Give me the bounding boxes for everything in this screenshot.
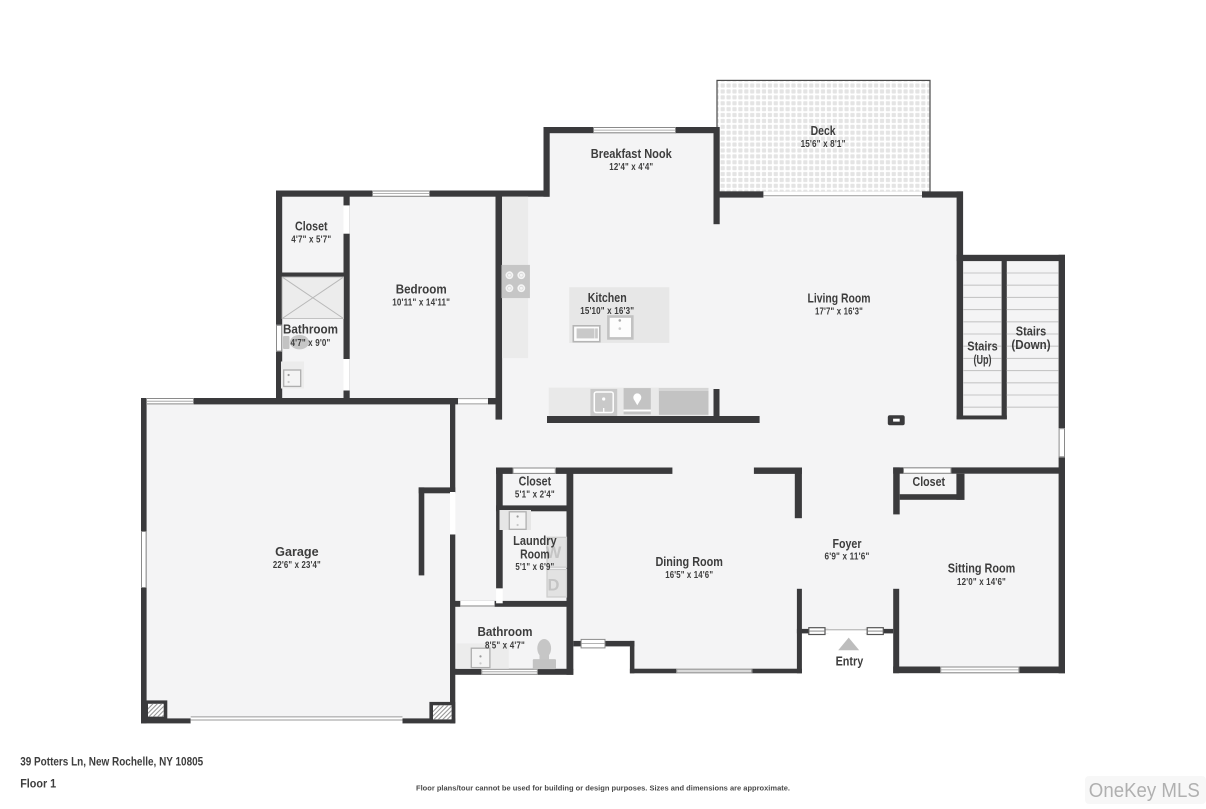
svg-text:6'9" x 11'6": 6'9" x 11'6" <box>825 552 870 563</box>
svg-text:D: D <box>548 577 560 595</box>
svg-text:Floor 1: Floor 1 <box>20 779 57 791</box>
svg-text:15'6" x 8'1": 15'6" x 8'1" <box>801 139 846 150</box>
svg-text:Stairs: Stairs <box>1016 325 1046 339</box>
svg-text:Closet: Closet <box>295 219 328 233</box>
svg-text:Foyer: Foyer <box>833 537 862 551</box>
svg-text:Closet: Closet <box>913 475 946 489</box>
svg-text:Dining Room: Dining Room <box>655 555 723 569</box>
svg-text:Breakfast Nook: Breakfast Nook <box>591 147 672 161</box>
svg-text:4'7" x 5'7": 4'7" x 5'7" <box>291 235 331 246</box>
svg-text:Room: Room <box>520 548 550 562</box>
svg-text:(Up): (Up) <box>973 353 991 367</box>
svg-text:Bathroom: Bathroom <box>283 322 338 336</box>
svg-text:Deck: Deck <box>811 124 836 138</box>
svg-text:Bedroom: Bedroom <box>396 283 447 297</box>
svg-text:Stairs: Stairs <box>967 339 997 353</box>
svg-text:Living Room: Living Room <box>808 292 871 306</box>
svg-text:Kitchen: Kitchen <box>588 291 627 305</box>
svg-text:39 Potters Ln, New Rochelle, N: 39 Potters Ln, New Rochelle, NY 10805 <box>20 757 204 769</box>
svg-text:12'0" x 14'6": 12'0" x 14'6" <box>957 577 1006 588</box>
svg-text:Bathroom: Bathroom <box>478 625 533 639</box>
svg-text:12'4" x 4'4": 12'4" x 4'4" <box>609 162 653 173</box>
svg-text:5'1" x 6'9": 5'1" x 6'9" <box>515 562 554 573</box>
svg-text:Floor plans/tour cannot be use: Floor plans/tour cannot be used for buil… <box>416 784 790 793</box>
svg-text:Closet: Closet <box>519 474 552 488</box>
svg-text:OneKey MLS: OneKey MLS <box>1089 780 1200 802</box>
svg-text:Sitting Room: Sitting Room <box>948 562 1016 576</box>
svg-text:(Down): (Down) <box>1011 338 1050 352</box>
svg-text:15'10" x 16'3": 15'10" x 16'3" <box>580 306 634 317</box>
svg-text:Laundry: Laundry <box>513 534 557 548</box>
svg-text:17'7" x 16'3": 17'7" x 16'3" <box>815 307 863 318</box>
svg-text:10'11" x 14'11": 10'11" x 14'11" <box>392 298 450 309</box>
svg-text:5'1" x 2'4": 5'1" x 2'4" <box>515 490 555 501</box>
svg-text:Garage: Garage <box>275 545 319 559</box>
svg-text:8'5" x 4'7": 8'5" x 4'7" <box>485 640 525 651</box>
svg-text:22'6" x 23'4": 22'6" x 23'4" <box>273 560 321 571</box>
svg-text:Entry: Entry <box>836 655 864 669</box>
svg-text:4'7" x 9'0": 4'7" x 9'0" <box>291 338 331 349</box>
svg-text:16'5" x 14'6": 16'5" x 14'6" <box>665 570 713 581</box>
